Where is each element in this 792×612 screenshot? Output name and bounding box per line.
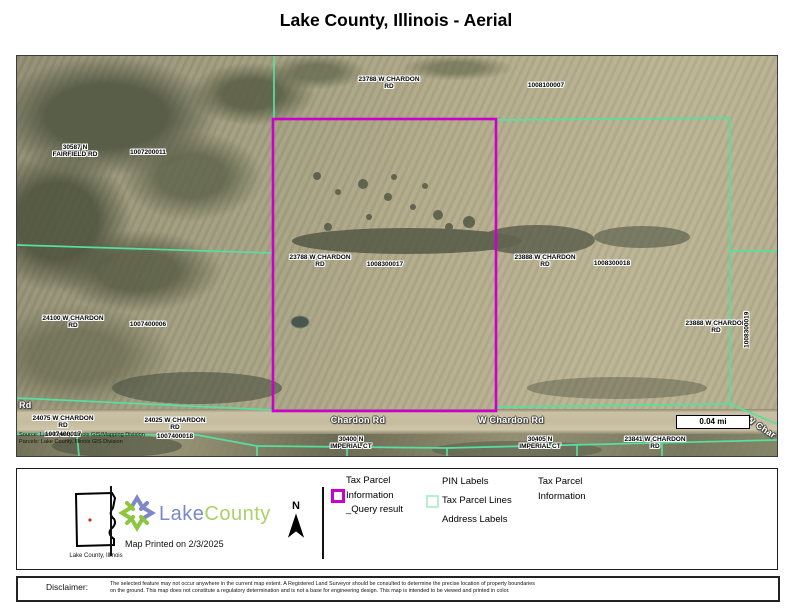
lake-county-logo-icon [117,493,157,533]
legend-item-pin-labels: PIN Labels [442,475,488,490]
map-printed-date: Map Printed on 2/3/2025 [125,539,224,549]
pin-label: 1008300017 [345,261,425,268]
legend-item-tax-parcel-info: Tax Parcel Information [538,475,586,504]
pin-label: 1008100007 [506,82,586,89]
address-label: 23841 W CHARDON RD [605,436,705,451]
legend-divider [322,487,324,559]
disclaimer-label: Disclaimer: [46,582,88,592]
address-label: 24075 W CHARDON RD [17,415,109,430]
pin-label-vertical: 1008300019 [743,295,750,365]
legend-item-query-result: Tax Parcel Information _Query result [346,474,403,518]
road-label: W Chardon Rd [461,415,561,425]
tree-cover [52,172,707,456]
legend-panel: Lake County, Illinois LakeCounty Map Pri… [16,468,778,570]
legend-item-parcel-lines: Tax Parcel Lines [442,494,512,509]
logo-lake: Lake [159,503,204,525]
pin-label: 1008300018 [572,260,652,267]
legend-divider [110,486,112,556]
disclaimer-panel: Disclaimer: The selected feature may not… [16,576,780,602]
north-label: N [280,500,312,512]
road-label: Chardon Rd [308,415,408,425]
pin-label: 1007200011 [108,149,188,156]
parcel-lines-swatch-icon [426,495,439,508]
disclaimer-text: The selected feature may not occur anywh… [110,581,670,597]
location-dot [88,518,91,521]
address-label: 23888 W CHARDON RD [666,320,766,335]
north-arrow-icon [287,513,305,539]
map-canvas: 23788 W CHARDON RD 1008100007 30587 N FA… [16,55,778,457]
road-label: Rd [19,400,49,410]
address-label: 23788 W CHARDON RD [339,76,439,91]
logo-county: County [204,503,270,525]
address-label: 30405 N IMPERIAL CT [490,436,590,451]
parcel-lines-overlay [17,56,777,456]
map-source-credit: Source: Lake County, Illinois GIS/Mappin… [19,432,145,446]
pin-label: 1007400018 [135,433,215,440]
address-label: 24025 W CHARDON RD [125,417,225,432]
legend-item-address-labels: Address Labels [442,513,507,528]
query-result-swatch-icon [331,489,345,503]
pin-label: 1007400006 [108,321,188,328]
pond [291,316,309,328]
lake-county-logo-text: LakeCounty [159,503,271,526]
scale-bar: 0.04 mi [676,415,750,429]
county-caption: Lake County, Illinois [53,553,139,559]
address-label: 30400 N IMPERIAL CT [301,436,401,451]
page-title: Lake County, Illinois - Aerial [0,10,792,31]
